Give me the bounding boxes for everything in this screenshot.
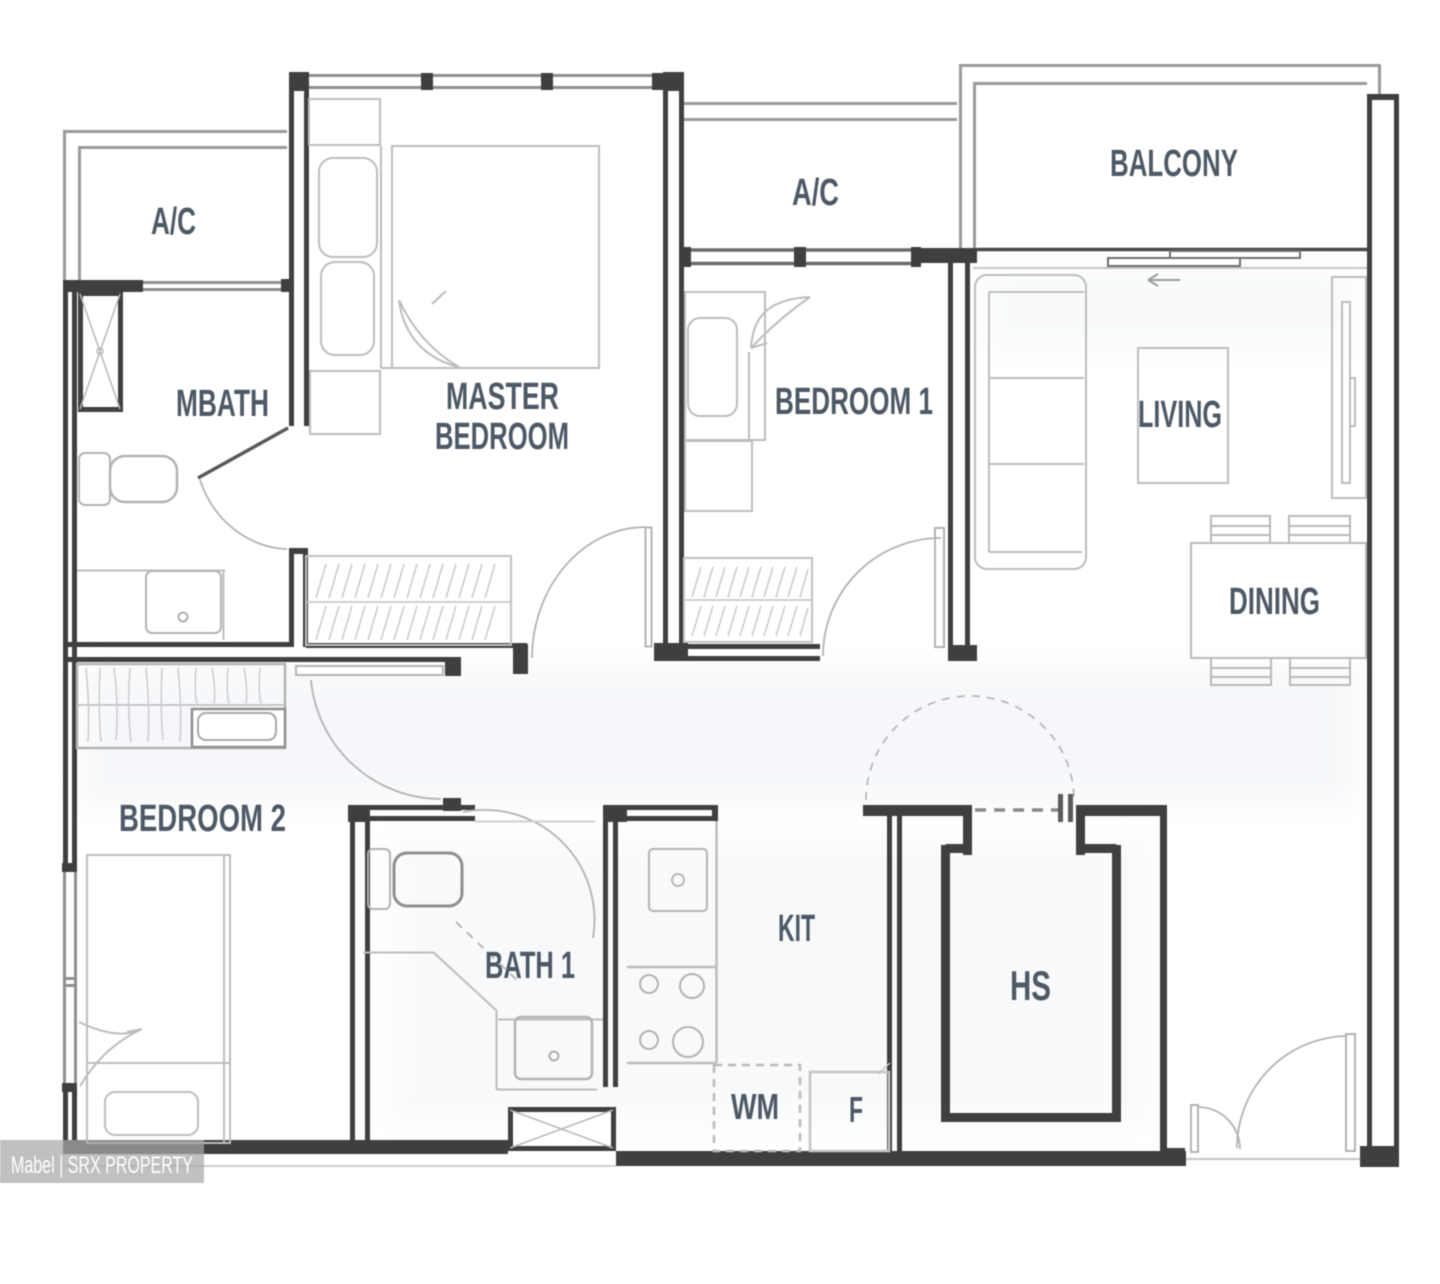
svg-text:MASTER: MASTER [446, 376, 559, 418]
svg-text:MBATH: MBATH [176, 383, 269, 425]
svg-text:BALCONY: BALCONY [1110, 143, 1238, 185]
svg-text:BEDROOM 2: BEDROOM 2 [119, 798, 286, 840]
svg-text:LIVING: LIVING [1138, 394, 1222, 436]
svg-text:BEDROOM: BEDROOM [435, 416, 569, 458]
svg-text:KIT: KIT [778, 908, 815, 950]
svg-text:A/C: A/C [792, 172, 839, 214]
svg-text:DINING: DINING [1229, 581, 1320, 623]
svg-text:Mabel | SRX PROPERTY: Mabel | SRX PROPERTY [11, 1152, 193, 1179]
svg-text:HS: HS [1010, 962, 1051, 1009]
svg-text:WM: WM [731, 1086, 779, 1127]
svg-text:BEDROOM 1: BEDROOM 1 [775, 381, 933, 423]
svg-text:BATH 1: BATH 1 [485, 945, 575, 987]
svg-text:F: F [849, 1089, 863, 1130]
svg-text:A/C: A/C [151, 201, 196, 243]
